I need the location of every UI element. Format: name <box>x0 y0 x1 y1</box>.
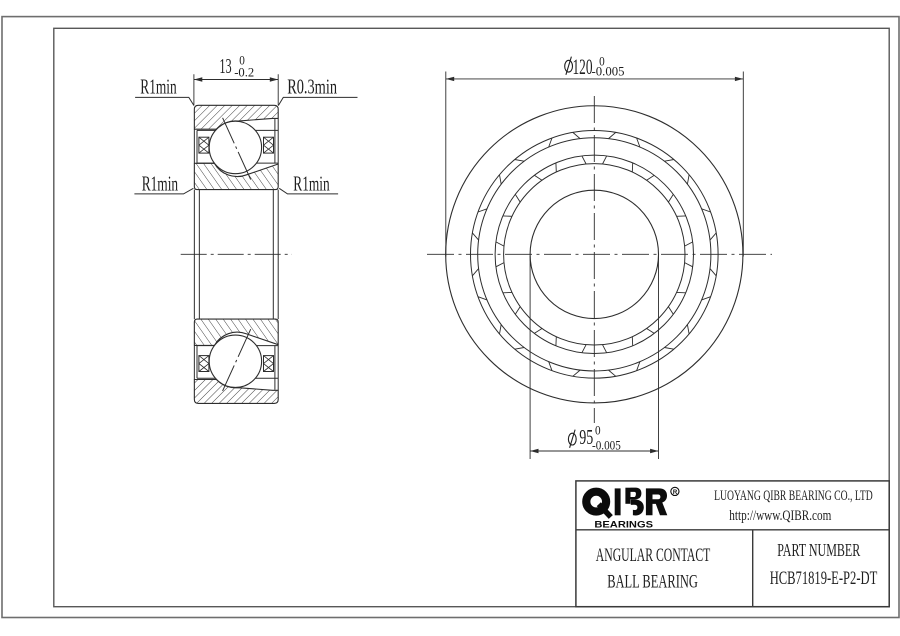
svg-text:R1min: R1min <box>140 75 177 99</box>
svg-text:R: R <box>673 490 678 496</box>
svg-text:LUOYANG QIBR BEARING CO., LTD: LUOYANG QIBR BEARING CO., LTD <box>714 488 873 504</box>
svg-text:BALL BEARING: BALL BEARING <box>607 571 698 592</box>
svg-text:0: 0 <box>595 422 601 437</box>
svg-text:-0.2: -0.2 <box>234 64 254 79</box>
svg-text:-0.005: -0.005 <box>592 64 625 79</box>
svg-text:R1min: R1min <box>142 171 179 195</box>
svg-text:R0.3min: R0.3min <box>287 75 337 99</box>
svg-text:BEARINGS: BEARINGS <box>594 520 653 530</box>
svg-text:HCB71819-E-P2-DT: HCB71819-E-P2-DT <box>770 568 878 589</box>
svg-text:R1min: R1min <box>293 171 330 195</box>
svg-text:PART NUMBER: PART NUMBER <box>777 540 861 560</box>
svg-text:120: 120 <box>573 54 593 79</box>
svg-text:http://www.QIBR.com: http://www.QIBR.com <box>729 508 831 524</box>
svg-text:-0.005: -0.005 <box>592 437 621 452</box>
svg-text:ANGULAR CONTACT: ANGULAR CONTACT <box>596 545 711 566</box>
svg-text:13: 13 <box>219 54 231 78</box>
